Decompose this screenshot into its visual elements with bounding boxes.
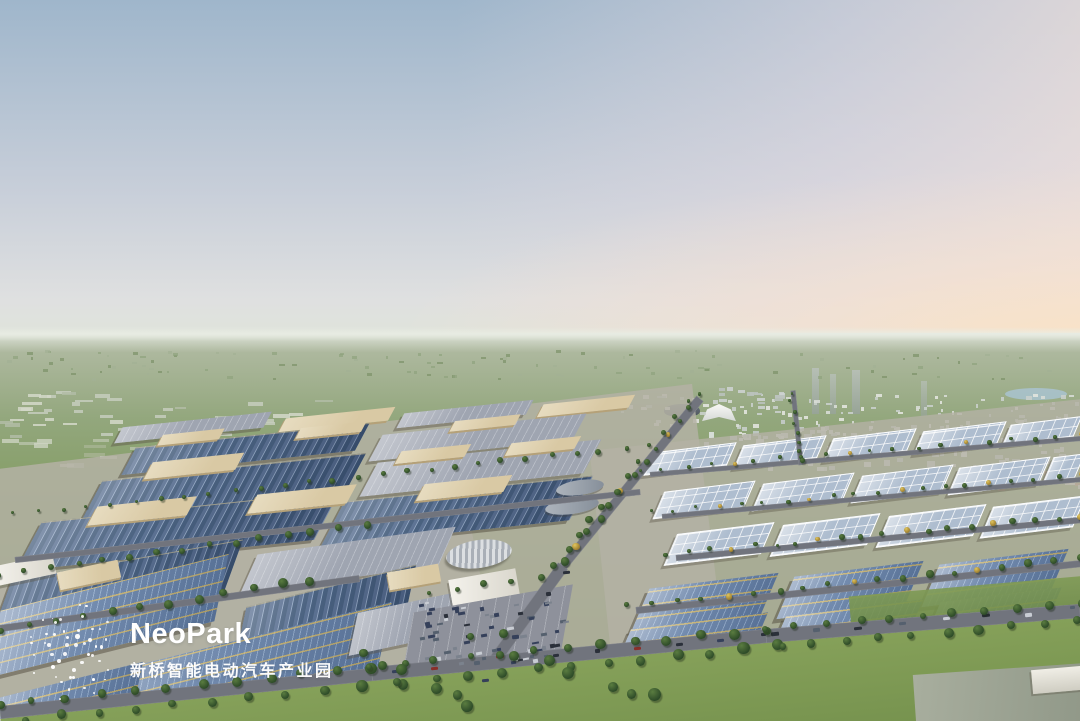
tree bbox=[753, 542, 757, 546]
tree bbox=[179, 548, 185, 554]
tree bbox=[793, 542, 797, 546]
tree bbox=[1041, 620, 1050, 629]
tree bbox=[698, 597, 702, 601]
tree bbox=[534, 663, 543, 672]
tree bbox=[921, 486, 925, 490]
tree bbox=[585, 516, 592, 523]
logo-wordmark: NeoPark bbox=[130, 620, 334, 649]
tree bbox=[576, 532, 583, 539]
logo-dot bbox=[83, 642, 86, 645]
tree bbox=[96, 709, 104, 717]
tree bbox=[1053, 435, 1057, 439]
logo-dot bbox=[92, 678, 95, 681]
tree bbox=[22, 717, 29, 721]
logo-dot bbox=[91, 628, 93, 630]
logo-dot bbox=[65, 643, 69, 647]
golden-tree bbox=[986, 480, 991, 485]
tree bbox=[962, 483, 967, 488]
tree bbox=[778, 455, 782, 459]
tree bbox=[595, 449, 601, 455]
tree bbox=[452, 464, 458, 470]
tree bbox=[278, 578, 288, 588]
tree bbox=[1050, 557, 1057, 564]
tree bbox=[885, 615, 893, 623]
tree bbox=[453, 690, 462, 699]
logo-dot bbox=[45, 633, 47, 635]
tree bbox=[499, 629, 508, 638]
tree bbox=[874, 576, 880, 582]
tree bbox=[980, 607, 988, 615]
tree bbox=[1033, 437, 1037, 441]
tree bbox=[654, 447, 658, 451]
tree bbox=[825, 581, 830, 586]
tree bbox=[497, 668, 507, 678]
tree bbox=[108, 503, 112, 507]
tree bbox=[1057, 474, 1062, 479]
neopark-logo: NeoPark 新桥智能电动汽车产业园 bbox=[26, 600, 334, 700]
tree bbox=[132, 706, 140, 714]
logo-dot bbox=[72, 668, 76, 672]
tree bbox=[605, 502, 612, 509]
tree bbox=[0, 628, 4, 634]
tree bbox=[1045, 601, 1054, 610]
tree bbox=[153, 549, 160, 556]
golden-tree bbox=[726, 593, 732, 599]
tree bbox=[729, 629, 739, 639]
logo-dot bbox=[72, 676, 76, 680]
tree bbox=[624, 602, 629, 607]
tree bbox=[306, 528, 314, 536]
tree bbox=[876, 491, 880, 495]
tree bbox=[598, 504, 604, 510]
tree bbox=[84, 505, 87, 508]
tree bbox=[751, 591, 756, 596]
tree bbox=[497, 457, 503, 463]
tree bbox=[99, 557, 105, 563]
tree bbox=[900, 575, 907, 582]
tree bbox=[778, 588, 784, 594]
golden-tree bbox=[904, 527, 910, 533]
logo-dot bbox=[42, 619, 44, 621]
tree bbox=[839, 534, 845, 540]
tree bbox=[987, 440, 992, 445]
tree bbox=[793, 410, 796, 413]
tree bbox=[159, 496, 164, 501]
tree bbox=[1073, 616, 1080, 624]
logo-texts: NeoPark 新桥智能电动汽车产业园 bbox=[130, 620, 334, 681]
tree bbox=[476, 461, 480, 465]
logo-dot bbox=[74, 643, 78, 647]
tree bbox=[790, 622, 797, 629]
tree bbox=[233, 540, 240, 547]
logo-dot bbox=[80, 661, 83, 664]
tree bbox=[648, 688, 661, 701]
tree bbox=[135, 500, 138, 503]
tree bbox=[219, 589, 226, 596]
logo-subtitle: 新桥智能电动汽车产业园 bbox=[130, 657, 334, 681]
tree bbox=[776, 544, 780, 548]
tree bbox=[705, 650, 714, 659]
tree bbox=[544, 655, 555, 666]
tree bbox=[832, 493, 836, 497]
tree bbox=[788, 399, 791, 402]
tree bbox=[780, 643, 786, 649]
tree bbox=[595, 639, 605, 649]
tree bbox=[1009, 437, 1013, 441]
golden-tree bbox=[718, 504, 722, 508]
tree bbox=[920, 613, 926, 619]
tree bbox=[381, 471, 386, 476]
tree bbox=[797, 441, 801, 445]
tree bbox=[627, 689, 637, 699]
tree bbox=[283, 483, 288, 488]
logo-dot bbox=[47, 643, 51, 647]
tree bbox=[868, 449, 871, 452]
tree bbox=[431, 683, 442, 694]
tree bbox=[672, 414, 677, 419]
logo-dot bbox=[57, 659, 61, 663]
logo-dot bbox=[53, 633, 57, 637]
tree bbox=[649, 601, 654, 606]
tree bbox=[0, 701, 5, 709]
tree bbox=[926, 529, 932, 535]
logo-dot bbox=[79, 604, 81, 606]
tree bbox=[843, 637, 851, 645]
tree bbox=[1013, 604, 1023, 614]
tree bbox=[427, 591, 431, 595]
tree bbox=[671, 510, 674, 513]
tree bbox=[126, 554, 133, 561]
tree bbox=[550, 452, 555, 457]
tree bbox=[550, 562, 557, 569]
tree bbox=[858, 534, 863, 539]
tree bbox=[737, 642, 750, 655]
logo-dot bbox=[104, 679, 106, 681]
tree bbox=[675, 598, 680, 603]
tree bbox=[430, 468, 434, 472]
tree bbox=[1007, 621, 1015, 629]
logo-dot bbox=[33, 672, 36, 675]
tree bbox=[522, 456, 529, 463]
logo-dot bbox=[63, 630, 65, 632]
tree bbox=[797, 449, 801, 453]
tree bbox=[858, 616, 866, 624]
golden-tree bbox=[572, 543, 579, 550]
logo-dot bbox=[75, 634, 80, 639]
tree bbox=[433, 675, 441, 683]
tree bbox=[698, 392, 702, 396]
logo-dot bbox=[107, 669, 109, 671]
logo-dot bbox=[60, 681, 62, 683]
tree bbox=[182, 495, 186, 499]
tree bbox=[631, 637, 639, 645]
tree bbox=[696, 630, 705, 639]
tree bbox=[694, 505, 698, 509]
tree bbox=[455, 587, 460, 592]
tree bbox=[1057, 517, 1062, 522]
tree bbox=[0, 573, 1, 578]
tree bbox=[823, 620, 830, 627]
logo-dot bbox=[93, 692, 95, 694]
tree bbox=[1009, 518, 1015, 524]
logo-dot bbox=[81, 615, 84, 618]
tree bbox=[800, 586, 805, 591]
tree bbox=[206, 492, 210, 496]
tree bbox=[250, 584, 257, 591]
tree bbox=[687, 549, 691, 553]
logo-dot bbox=[66, 636, 69, 639]
golden-tree bbox=[815, 537, 820, 542]
tree bbox=[575, 451, 580, 456]
tree bbox=[1009, 479, 1013, 483]
tree bbox=[917, 447, 921, 451]
tree bbox=[686, 405, 691, 410]
tree bbox=[707, 546, 712, 551]
logo-dot bbox=[105, 638, 108, 641]
tree bbox=[650, 509, 653, 512]
logo-dot bbox=[83, 687, 86, 690]
tree bbox=[583, 528, 590, 535]
tree bbox=[1032, 517, 1038, 523]
tree bbox=[562, 667, 574, 679]
tree bbox=[530, 646, 538, 654]
tree bbox=[792, 422, 795, 425]
golden-tree bbox=[990, 520, 995, 525]
logo-dot bbox=[98, 660, 100, 662]
tree bbox=[467, 633, 473, 639]
tree bbox=[740, 502, 743, 505]
tree bbox=[907, 632, 914, 639]
tree bbox=[329, 478, 335, 484]
tree bbox=[710, 462, 713, 465]
logo-dot bbox=[88, 638, 92, 642]
logo-dot bbox=[91, 654, 94, 657]
tree bbox=[335, 524, 342, 531]
golden-tree bbox=[964, 440, 968, 444]
logo-dot bbox=[100, 645, 103, 648]
tree bbox=[566, 546, 573, 553]
tree bbox=[786, 500, 790, 504]
tree bbox=[1024, 559, 1031, 566]
tree bbox=[307, 479, 311, 483]
golden-tree bbox=[807, 498, 811, 502]
tree bbox=[926, 570, 933, 577]
tree bbox=[538, 574, 545, 581]
tree bbox=[807, 639, 815, 647]
tree bbox=[938, 443, 942, 447]
golden-tree bbox=[729, 547, 734, 552]
logo-dot bbox=[30, 636, 32, 638]
logo-dot bbox=[55, 676, 57, 678]
logo-dot bbox=[77, 629, 80, 632]
logo-dot bbox=[85, 605, 87, 607]
tree bbox=[207, 541, 212, 546]
tree bbox=[673, 649, 684, 660]
logo-dot bbox=[33, 654, 35, 656]
tree bbox=[663, 553, 667, 557]
logo-dot bbox=[52, 618, 54, 620]
golden-tree bbox=[666, 432, 671, 437]
tree bbox=[625, 473, 631, 479]
tree bbox=[463, 671, 473, 681]
tree bbox=[973, 625, 984, 636]
golden-tree bbox=[974, 567, 980, 573]
tree bbox=[625, 446, 630, 451]
golden-tree bbox=[900, 487, 905, 492]
tree bbox=[874, 633, 882, 641]
golden-tree bbox=[733, 462, 737, 466]
tree bbox=[1031, 478, 1035, 482]
logo-dot bbox=[44, 642, 46, 644]
logo-dot bbox=[95, 645, 97, 647]
tree bbox=[800, 458, 805, 463]
logo-dot bbox=[54, 621, 57, 624]
tree bbox=[285, 531, 292, 538]
tree bbox=[791, 392, 793, 394]
tree bbox=[508, 579, 514, 585]
tree bbox=[751, 459, 755, 463]
tree bbox=[636, 459, 641, 464]
tree bbox=[944, 628, 954, 638]
tree bbox=[359, 649, 367, 657]
tree bbox=[879, 531, 884, 536]
tree bbox=[21, 568, 25, 572]
tree bbox=[632, 472, 638, 478]
tree bbox=[999, 564, 1005, 570]
tree bbox=[37, 509, 40, 512]
logo-dot bbox=[106, 621, 109, 624]
neopark-aerial-rendering: NeoPark 新桥智能电动汽车产业园 bbox=[0, 0, 1080, 721]
tree bbox=[890, 447, 893, 450]
tree bbox=[364, 521, 371, 528]
tree bbox=[824, 452, 828, 456]
tree bbox=[598, 515, 605, 522]
tree bbox=[234, 488, 238, 492]
tree bbox=[255, 534, 262, 541]
tree bbox=[378, 661, 387, 670]
tree bbox=[644, 459, 650, 465]
tree bbox=[608, 682, 618, 692]
tree bbox=[396, 664, 407, 675]
logo-dot bbox=[59, 698, 61, 700]
tree bbox=[461, 700, 472, 711]
tree bbox=[944, 525, 950, 531]
tree bbox=[57, 709, 66, 718]
tree bbox=[77, 561, 82, 566]
golden-tree bbox=[852, 579, 858, 585]
tree bbox=[333, 666, 342, 675]
tree bbox=[796, 431, 800, 435]
tree bbox=[944, 484, 948, 488]
tree bbox=[356, 680, 368, 692]
tree bbox=[11, 511, 15, 515]
tree bbox=[404, 468, 409, 473]
tree bbox=[947, 608, 956, 617]
logo-dot bbox=[99, 628, 102, 631]
tree bbox=[356, 475, 361, 480]
tree bbox=[509, 651, 519, 661]
tree bbox=[969, 524, 975, 530]
tree bbox=[48, 564, 54, 570]
logo-dot bbox=[68, 688, 70, 690]
tree bbox=[687, 399, 691, 403]
tree bbox=[760, 501, 764, 505]
logo-dot-globe-icon bbox=[26, 600, 118, 700]
logo-dot bbox=[30, 642, 32, 644]
logo-dot bbox=[87, 653, 90, 656]
tree bbox=[305, 577, 314, 586]
tree bbox=[480, 580, 487, 587]
tree bbox=[62, 508, 66, 512]
tree bbox=[636, 656, 646, 666]
tree bbox=[687, 465, 691, 469]
tree bbox=[659, 468, 662, 471]
tree bbox=[851, 492, 855, 496]
tree bbox=[259, 486, 264, 491]
tree bbox=[639, 469, 642, 472]
tree bbox=[647, 443, 651, 447]
logo-dot bbox=[51, 665, 55, 669]
tree bbox=[614, 489, 621, 496]
tree bbox=[168, 700, 175, 707]
tree bbox=[952, 571, 957, 576]
logo-dot bbox=[59, 618, 62, 621]
tree bbox=[678, 419, 683, 424]
logo-dot bbox=[63, 652, 67, 656]
tree bbox=[561, 557, 569, 565]
tree bbox=[496, 651, 504, 659]
tree bbox=[661, 636, 671, 646]
logo-dot bbox=[50, 653, 53, 656]
tree bbox=[468, 653, 475, 660]
tree bbox=[429, 656, 437, 664]
tree bbox=[605, 659, 613, 667]
tree bbox=[564, 644, 572, 652]
golden-tree bbox=[848, 451, 852, 455]
